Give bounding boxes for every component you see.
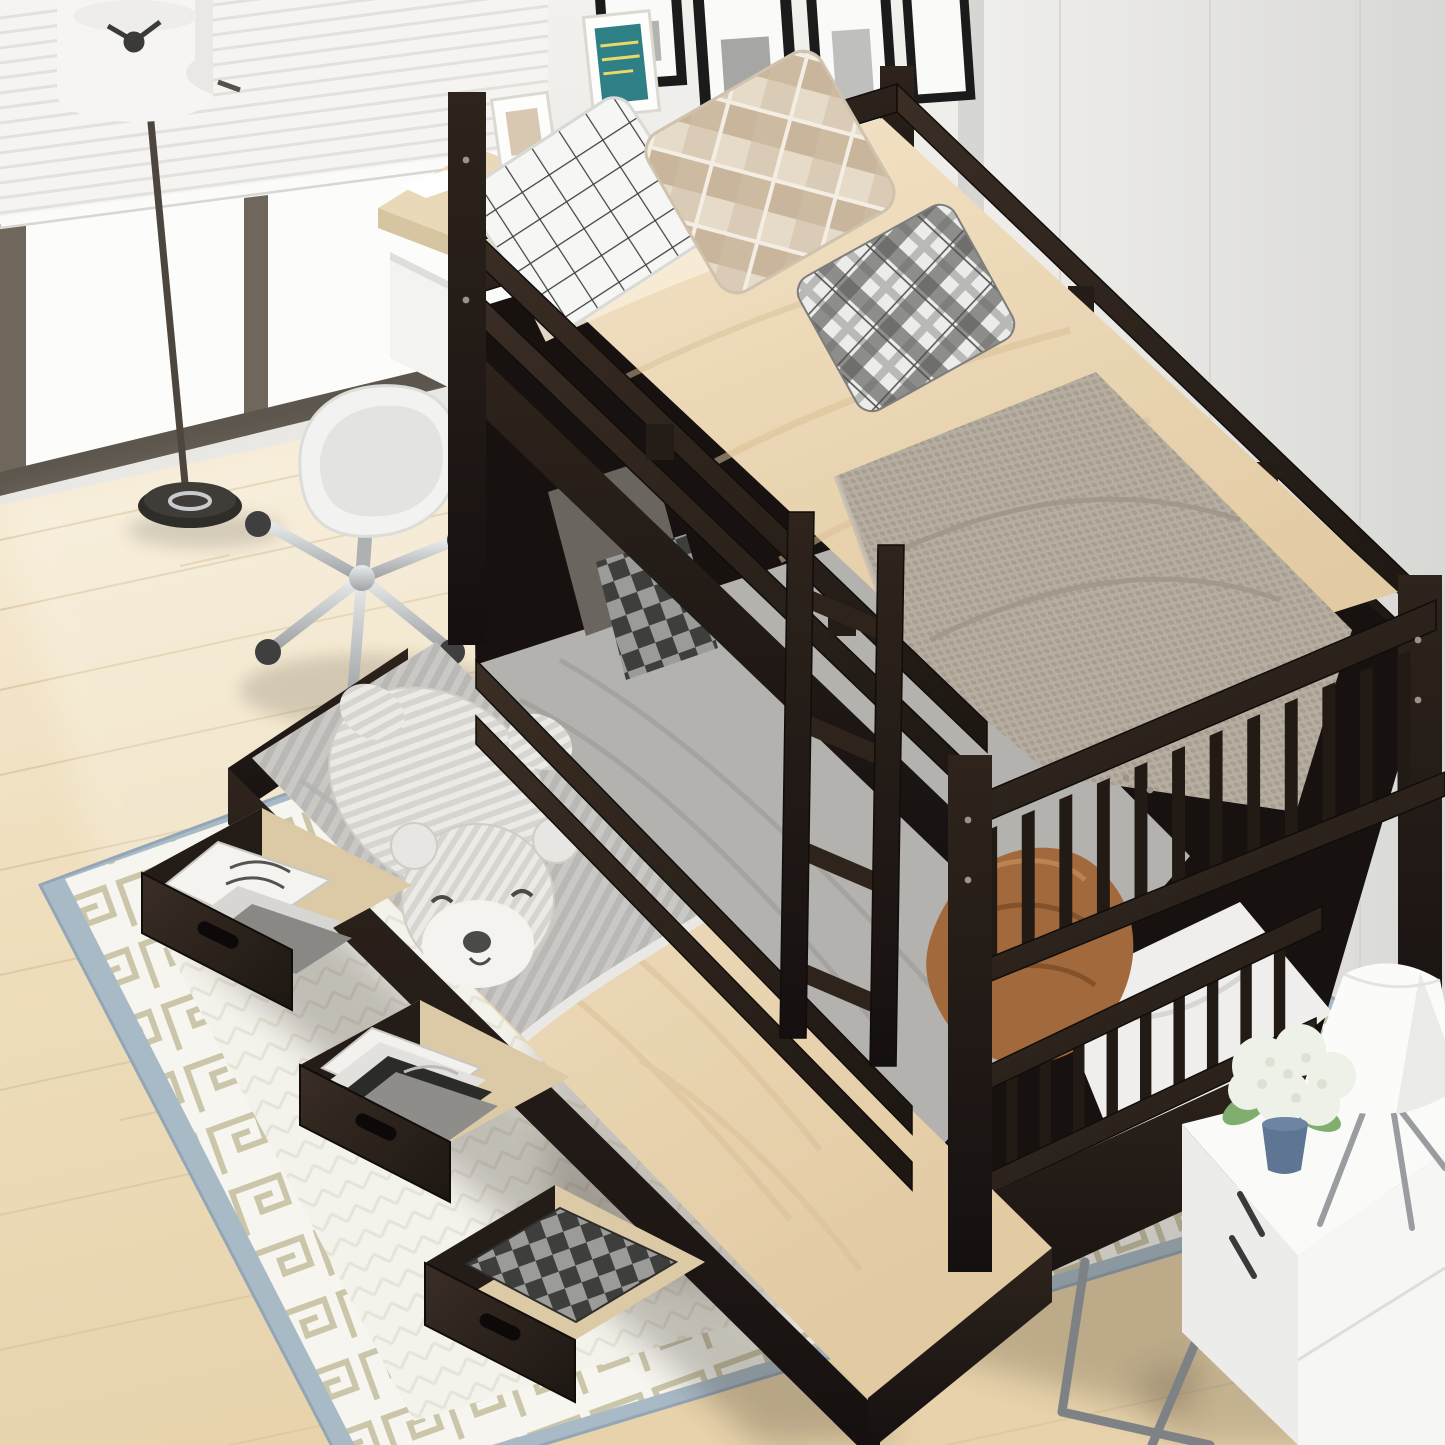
bed-post-near-head — [448, 92, 486, 645]
bedroom-product-photo — [0, 0, 1445, 1445]
bed-post-near-foot — [948, 755, 992, 1272]
window-mullion — [244, 195, 268, 440]
bear-nose — [463, 931, 491, 953]
flower-vase — [1262, 1124, 1308, 1174]
bear-ear — [391, 823, 437, 869]
window-jamb-left — [0, 221, 26, 472]
